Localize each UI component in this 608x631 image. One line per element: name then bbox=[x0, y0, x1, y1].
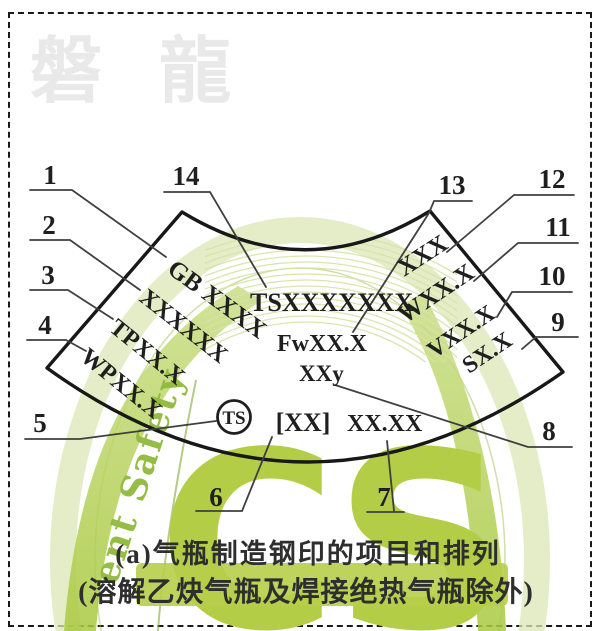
year-marking: XXy bbox=[299, 361, 344, 386]
callout-11: 11 bbox=[545, 212, 571, 242]
callout-5: 5 bbox=[33, 408, 47, 438]
callout-6: 6 bbox=[209, 482, 223, 512]
callout-4: 4 bbox=[38, 310, 52, 340]
callout-3: 3 bbox=[41, 260, 55, 290]
ts-license-marking: TSXXXXXXX bbox=[250, 288, 413, 317]
callout-2: 2 bbox=[42, 210, 56, 240]
figure-caption-line2: (溶解乙炔气瓶及焊接绝热气瓶除外) bbox=[0, 570, 608, 610]
callout-8: 8 bbox=[542, 416, 556, 446]
leader-line-9 bbox=[522, 337, 578, 349]
fw-marking: FwXX.X bbox=[277, 331, 368, 357]
callout-13: 13 bbox=[439, 170, 466, 200]
ts-mark-letters: TS bbox=[222, 408, 245, 429]
inspection-date-marking: XX.XX bbox=[347, 411, 423, 437]
leader-line-4 bbox=[27, 340, 86, 351]
callout-1: 1 bbox=[43, 160, 57, 190]
callout-12: 12 bbox=[539, 164, 566, 194]
inspection-station-code-marking: [XX] bbox=[276, 408, 331, 437]
callout-10: 10 bbox=[539, 261, 566, 291]
callout-7: 7 bbox=[377, 482, 391, 512]
figure-canvas: 磐 龍 CS ent Safety bbox=[0, 0, 608, 631]
callout-14: 14 bbox=[173, 161, 200, 191]
callout-9: 9 bbox=[551, 307, 565, 337]
figure-caption-line1: (a)气瓶制造钢印的项目和排列 bbox=[0, 532, 608, 571]
